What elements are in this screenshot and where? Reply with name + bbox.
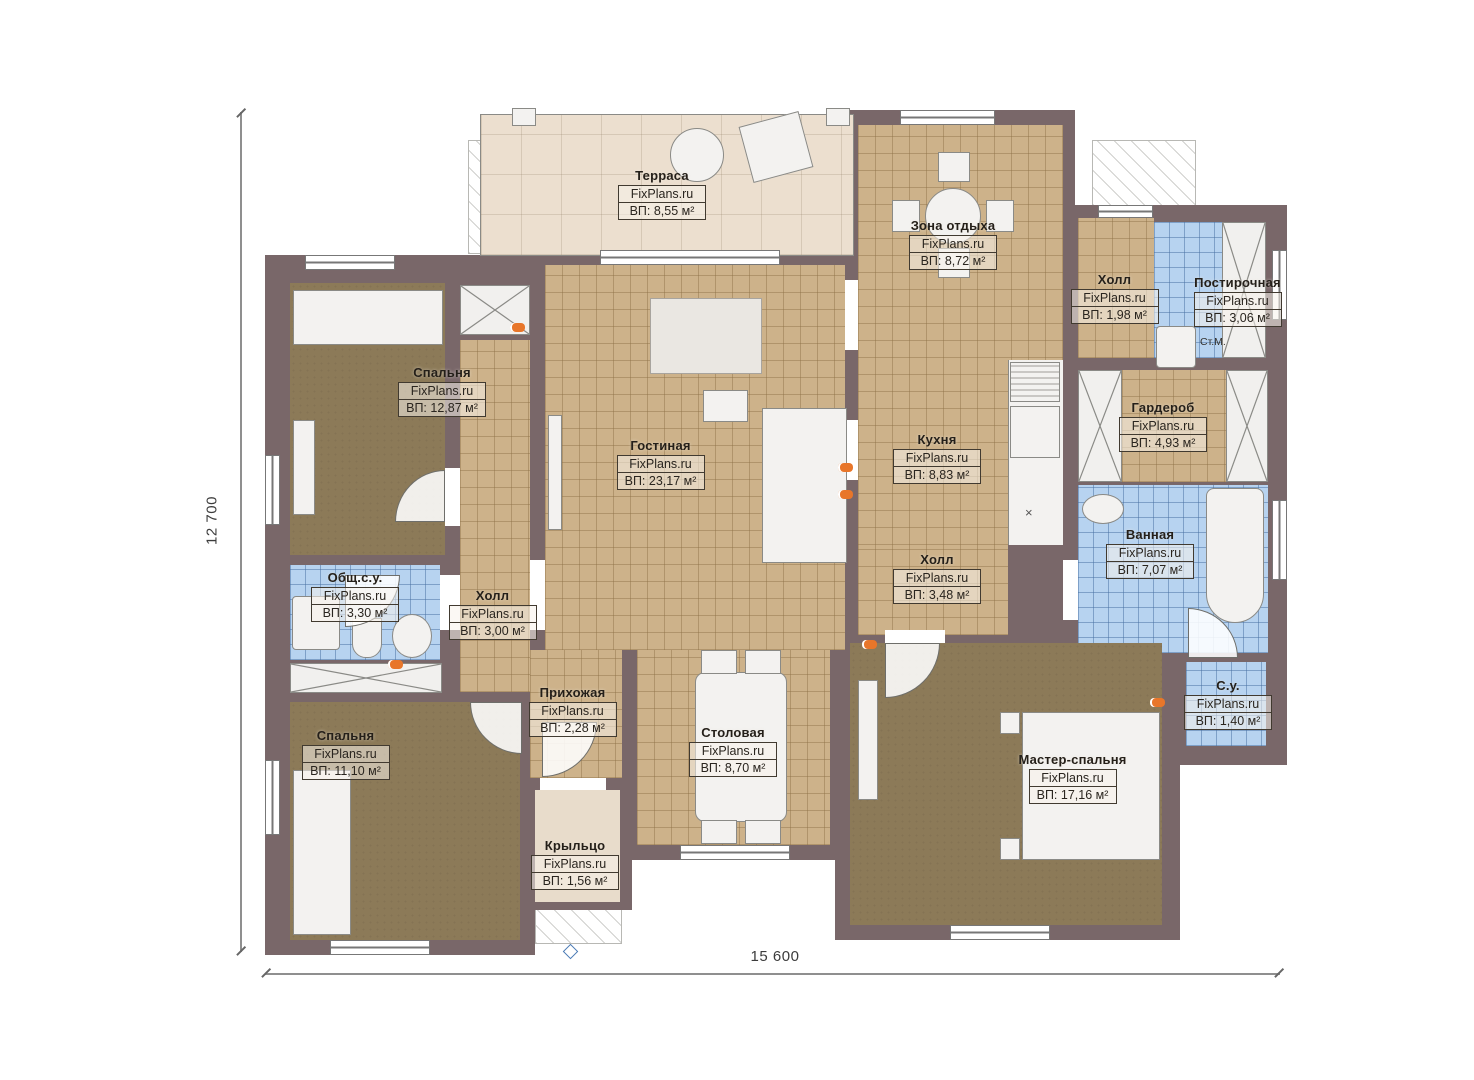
room-info-box: FixPlans.ru ВП: 8,70 м² [689, 742, 777, 777]
room-info-box: FixPlans.ru ВП: 3,06 м² [1194, 292, 1282, 327]
laundry-washer-label: Ст.М. [1200, 336, 1226, 348]
room-watermark: FixPlans.ru [532, 856, 618, 873]
room-area: ВП: 3,48 м² [894, 587, 980, 603]
room-name: Кухня [882, 432, 992, 447]
living-sofa [762, 408, 847, 563]
room-label-bedroom-1: Спальня FixPlans.ru ВП: 12,87 м² [382, 365, 502, 417]
room-info-box: FixPlans.ru ВП: 4,93 м² [1119, 417, 1207, 452]
living-coffee-table [703, 390, 748, 422]
room-label-terrace: Терраса FixPlans.ru ВП: 8,55 м² [592, 168, 732, 220]
kitchen-floor-mark: × [1025, 505, 1033, 520]
master-wardrobe-unit [858, 680, 878, 800]
room-label-hall-left: Холл FixPlans.ru ВП: 3,00 м² [440, 588, 545, 640]
room-label-entry-hall: Прихожая FixPlans.ru ВП: 2,28 м² [520, 685, 625, 737]
room-label-hall-right: Холл FixPlans.ru ВП: 1,98 м² [1062, 272, 1167, 324]
room-watermark: FixPlans.ru [690, 743, 776, 760]
room-area: ВП: 2,28 м² [530, 720, 616, 736]
master-nightstand-top [1000, 712, 1020, 734]
bedroom2-bed [293, 770, 351, 935]
room-area: ВП: 1,56 м² [532, 873, 618, 889]
room-area: ВП: 1,40 м² [1185, 713, 1271, 729]
room-label-master-bedroom: Мастер-спальня FixPlans.ru ВП: 17,16 м² [1000, 752, 1145, 804]
room-info-box: FixPlans.ru ВП: 17,16 м² [1029, 769, 1117, 804]
window-master-bottom [950, 925, 1050, 940]
window-dining-bottom [680, 845, 790, 860]
dining-chair-4 [745, 820, 781, 844]
dining-chair-1 [701, 650, 737, 674]
room-info-box: FixPlans.ru ВП: 8,83 м² [893, 449, 981, 484]
room-watermark: FixPlans.ru [894, 450, 980, 467]
room-info-box: FixPlans.ru ВП: 23,17 м² [617, 455, 705, 490]
door-marker-4 [388, 660, 403, 669]
room-label-laundry: Постирочная FixPlans.ru ВП: 3,06 м² [1180, 275, 1295, 327]
room-name: Крыльцо [520, 838, 630, 853]
dimension-line-horizontal [265, 973, 1280, 975]
room-name: Спальня [288, 728, 403, 743]
master-nightstand-bottom [1000, 838, 1020, 860]
restzone-chair-top [938, 152, 970, 182]
room-name: Ванная [1095, 527, 1205, 542]
tv-stand [548, 415, 562, 530]
window-hall-right-top [1098, 205, 1153, 218]
room-area: ВП: 8,72 м² [910, 253, 996, 269]
room-area: ВП: 3,30 м² [312, 605, 398, 621]
floor-plan-canvas: × Ст.М. Терраса FixPlans.ru ВП: 8,55 м² … [0, 0, 1474, 1080]
room-label-shared-wc: Общ.с.у. FixPlans.ru ВП: 3,30 м² [300, 570, 410, 622]
window-bathroom-right [1272, 500, 1287, 580]
room-watermark: FixPlans.ru [312, 588, 398, 605]
room-area: ВП: 4,93 м² [1120, 435, 1206, 451]
room-area: ВП: 8,83 м² [894, 467, 980, 483]
room-name: С.у. [1178, 678, 1278, 693]
room-label-living-room: Гостиная FixPlans.ru ВП: 23,17 м² [598, 438, 723, 490]
dimension-line-vertical [240, 112, 242, 952]
door-living-restzone [845, 280, 858, 350]
door-bedroom1 [445, 468, 460, 526]
bedroom1-desk [293, 420, 315, 515]
room-area: ВП: 8,70 м² [690, 760, 776, 776]
room-area: ВП: 3,06 м² [1195, 310, 1281, 326]
room-label-bedroom-2: Спальня FixPlans.ru ВП: 11,10 м² [288, 728, 403, 780]
elevation-marker [563, 944, 579, 960]
room-watermark: FixPlans.ru [450, 606, 536, 623]
dimension-width-label: 15 600 [715, 948, 835, 965]
room-area: ВП: 1,98 м² [1072, 307, 1158, 323]
room-name: Мастер-спальня [1000, 752, 1145, 767]
laundry-washer [1156, 326, 1196, 368]
dining-chair-3 [701, 820, 737, 844]
room-label-dining-room: Столовая FixPlans.ru ВП: 8,70 м² [678, 725, 788, 777]
window-bedroom1-left [265, 455, 280, 525]
room-watermark: FixPlans.ru [530, 703, 616, 720]
room-info-box: FixPlans.ru ВП: 1,98 м² [1071, 289, 1159, 324]
room-name: Общ.с.у. [300, 570, 410, 585]
closet-left-wing [290, 663, 442, 693]
room-info-box: FixPlans.ru ВП: 1,56 м² [531, 855, 619, 890]
room-area: ВП: 8,55 м² [619, 203, 705, 219]
room-info-box: FixPlans.ru ВП: 8,72 м² [909, 235, 997, 270]
room-info-box: FixPlans.ru ВП: 3,30 м² [311, 587, 399, 622]
door-marker-5 [1150, 698, 1165, 707]
room-label-hall-kitchen: Холл FixPlans.ru ВП: 3,48 м² [882, 552, 992, 604]
room-watermark: FixPlans.ru [1107, 545, 1193, 562]
room-info-box: FixPlans.ru ВП: 7,07 м² [1106, 544, 1194, 579]
room-watermark: FixPlans.ru [1195, 293, 1281, 310]
room-info-box: FixPlans.ru ВП: 11,10 м² [302, 745, 390, 780]
terrace-column-right [826, 108, 850, 126]
window-bedroom2-bottom [330, 940, 430, 955]
room-name: Гостиная [598, 438, 723, 453]
bathroom-sink [1082, 494, 1124, 524]
room-info-box: FixPlans.ru ВП: 2,28 м² [529, 702, 617, 737]
door-master [885, 630, 945, 643]
room-name: Постирочная [1180, 275, 1295, 290]
door-marker-3 [838, 490, 853, 499]
room-name: Столовая [678, 725, 788, 740]
room-name: Прихожая [520, 685, 625, 700]
dining-chair-2 [745, 650, 781, 674]
room-label-porch: Крыльцо FixPlans.ru ВП: 1,56 м² [520, 838, 630, 890]
dimension-height-label: 12 700 [204, 491, 221, 551]
room-info-box: FixPlans.ru ВП: 12,87 м² [398, 382, 486, 417]
room-watermark: FixPlans.ru [1185, 696, 1271, 713]
room-info-box: FixPlans.ru ВП: 3,48 м² [893, 569, 981, 604]
room-area: ВП: 12,87 м² [399, 400, 485, 416]
room-watermark: FixPlans.ru [1072, 290, 1158, 307]
wardrobe-right-unit [1226, 370, 1268, 482]
window-bedroom1-top [305, 255, 395, 270]
room-label-wardrobe: Гардероб FixPlans.ru ВП: 4,93 м² [1108, 400, 1218, 452]
room-name: Спальня [382, 365, 502, 380]
door-front-entry [540, 778, 606, 790]
window-restzone-top [900, 110, 995, 125]
room-area: ВП: 3,00 м² [450, 623, 536, 639]
door-marker-6 [862, 640, 877, 649]
terrace-sliding-door [600, 250, 780, 265]
room-area: ВП: 17,16 м² [1030, 787, 1116, 803]
kitchen-stove [1010, 362, 1060, 402]
room-watermark: FixPlans.ru [894, 570, 980, 587]
door-bathroom-hall [1063, 560, 1078, 620]
door-marker-2 [838, 463, 853, 472]
room-name: Холл [882, 552, 992, 567]
room-name: Холл [440, 588, 545, 603]
room-name: Терраса [592, 168, 732, 183]
living-rug [650, 298, 762, 374]
room-watermark: FixPlans.ru [1030, 770, 1116, 787]
room-watermark: FixPlans.ru [399, 383, 485, 400]
room-watermark: FixPlans.ru [619, 186, 705, 203]
room-label-kitchen: Кухня FixPlans.ru ВП: 8,83 м² [882, 432, 992, 484]
window-bedroom2-left [265, 760, 280, 835]
room-watermark: FixPlans.ru [303, 746, 389, 763]
room-name: Гардероб [1108, 400, 1218, 415]
bathtub [1206, 488, 1264, 623]
door-marker-1 [510, 323, 525, 332]
roof-outline-porch [535, 906, 622, 944]
room-info-box: FixPlans.ru ВП: 3,00 м² [449, 605, 537, 640]
room-label-wc: С.у. FixPlans.ru ВП: 1,40 м² [1178, 678, 1278, 730]
room-area: ВП: 23,17 м² [618, 473, 704, 489]
room-watermark: FixPlans.ru [1120, 418, 1206, 435]
kitchen-sink [1010, 406, 1060, 458]
room-name: Зона отдыха [878, 218, 1028, 233]
room-info-box: FixPlans.ru ВП: 8,55 м² [618, 185, 706, 220]
roof-outline-right [1092, 140, 1196, 206]
bedroom1-bed [293, 290, 443, 345]
room-info-box: FixPlans.ru ВП: 1,40 м² [1184, 695, 1272, 730]
room-label-rest-zone: Зона отдыха FixPlans.ru ВП: 8,72 м² [878, 218, 1028, 270]
room-watermark: FixPlans.ru [910, 236, 996, 253]
room-name: Холл [1062, 272, 1167, 287]
room-area: ВП: 7,07 м² [1107, 562, 1193, 578]
room-label-bathroom: Ванная FixPlans.ru ВП: 7,07 м² [1095, 527, 1205, 579]
terrace-column-left [512, 108, 536, 126]
room-area: ВП: 11,10 м² [303, 763, 389, 779]
room-watermark: FixPlans.ru [618, 456, 704, 473]
